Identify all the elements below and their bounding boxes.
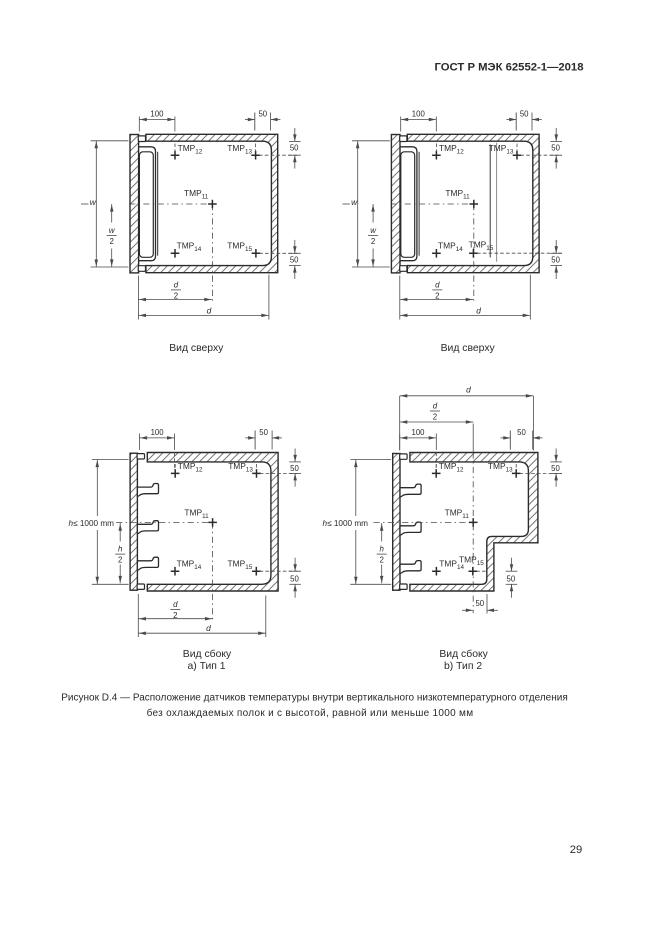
svg-text:50: 50 (517, 428, 526, 437)
svg-text:Вид сверху: Вид сверху (441, 343, 496, 354)
svg-text:a) Тип 1: a) Тип 1 (187, 661, 225, 672)
svg-text:d: d (207, 305, 212, 315)
svg-text:TMP15: TMP15 (228, 559, 253, 572)
svg-text:50: 50 (551, 464, 560, 473)
svg-text:TMP11: TMP11 (184, 507, 209, 520)
svg-text:50: 50 (551, 143, 560, 152)
svg-text:2: 2 (173, 611, 177, 620)
svg-text:Вид сбоку: Вид сбоку (439, 648, 488, 660)
svg-text:50: 50 (290, 574, 299, 583)
svg-text:29: 29 (570, 844, 582, 856)
svg-text:TMP12: TMP12 (178, 143, 203, 156)
svg-text:2: 2 (110, 237, 114, 246)
svg-text:h: h (118, 545, 123, 554)
svg-text:50: 50 (290, 143, 299, 152)
svg-text:TMP13: TMP13 (488, 461, 513, 474)
svg-text:w: w (109, 226, 116, 235)
svg-text:Вид сбоку: Вид сбоку (183, 648, 232, 660)
svg-text:ГОСТ Р МЭК 62552-1—2018: ГОСТ Р МЭК 62552-1—2018 (435, 62, 584, 74)
svg-text:b) Тип 2: b) Тип 2 (444, 661, 482, 672)
svg-text:h≤ 1000 mm: h≤ 1000 mm (69, 519, 115, 528)
svg-text:d: d (476, 305, 481, 315)
svg-text:TMP12: TMP12 (439, 461, 464, 474)
svg-text:2: 2 (380, 556, 384, 565)
svg-text:50: 50 (520, 110, 529, 119)
svg-text:Вид сверху: Вид сверху (169, 343, 224, 354)
svg-text:50: 50 (475, 599, 484, 608)
svg-text:50: 50 (258, 110, 267, 119)
svg-text:2: 2 (371, 237, 375, 246)
svg-text:TMP11: TMP11 (445, 507, 470, 520)
svg-text:100: 100 (412, 110, 426, 119)
svg-text:без охлаждаемых полок и с высо: без охлаждаемых полок и с высотой, равно… (147, 707, 474, 719)
svg-text:TMP12: TMP12 (439, 143, 464, 156)
svg-text:h: h (380, 545, 385, 554)
svg-text:TMP15: TMP15 (227, 241, 252, 254)
svg-text:w: w (370, 226, 377, 235)
svg-text:w: w (351, 197, 358, 207)
svg-text:h≤ 1000 mm: h≤ 1000 mm (323, 519, 369, 528)
svg-text:TMP12: TMP12 (178, 461, 203, 474)
svg-text:2: 2 (118, 556, 122, 565)
svg-text:TMP13: TMP13 (227, 143, 252, 156)
svg-text:2: 2 (174, 292, 178, 301)
svg-text:TMP14: TMP14 (177, 559, 202, 572)
svg-text:TMP11: TMP11 (184, 188, 209, 201)
svg-text:d: d (174, 280, 179, 289)
svg-text:50: 50 (290, 256, 299, 265)
svg-text:TMP13: TMP13 (228, 461, 253, 474)
svg-text:Рисунок D.4 — Расположение да: Рисунок D.4 — Расположение датчиков темп… (61, 692, 567, 703)
svg-text:TMP14: TMP14 (177, 241, 202, 254)
svg-text:100: 100 (151, 428, 165, 437)
svg-text:50: 50 (290, 464, 299, 473)
svg-text:TMP11: TMP11 (445, 188, 470, 201)
svg-text:100: 100 (411, 428, 425, 437)
svg-text:d: d (466, 384, 471, 394)
svg-text:d: d (433, 401, 438, 410)
svg-text:d: d (173, 600, 178, 609)
svg-text:50: 50 (507, 574, 516, 583)
svg-text:2: 2 (433, 413, 437, 422)
svg-text:100: 100 (150, 110, 164, 119)
svg-text:50: 50 (259, 428, 268, 437)
svg-text:TMP13: TMP13 (489, 143, 514, 156)
svg-text:d: d (435, 280, 440, 289)
svg-text:TMP14: TMP14 (438, 241, 463, 254)
svg-text:d: d (206, 623, 211, 633)
svg-text:w: w (90, 197, 97, 207)
svg-text:2: 2 (435, 292, 439, 301)
svg-text:50: 50 (551, 256, 560, 265)
